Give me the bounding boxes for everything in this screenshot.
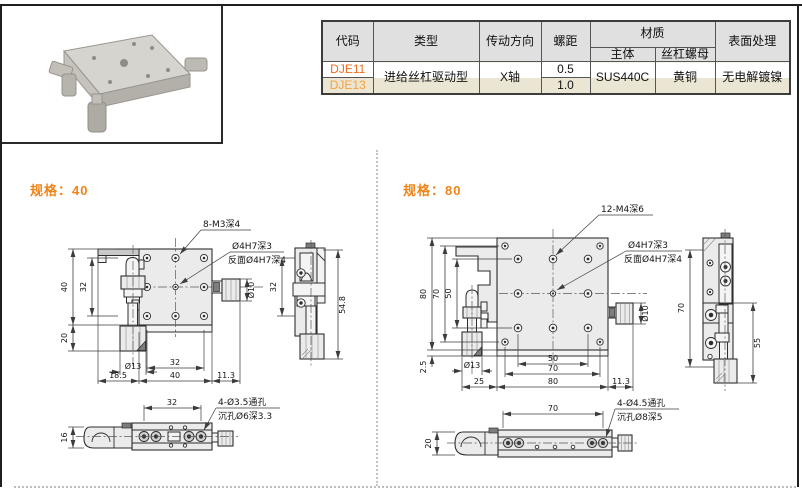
- callout-40-base-holes: 4-Ø3.5通孔: [218, 397, 266, 408]
- cell-type: 进给丝杠驱动型: [373, 62, 479, 94]
- dim-80-side-span: 70: [677, 303, 686, 313]
- header-type: 类型: [373, 21, 479, 62]
- dim-80-base-hole-span: 70: [548, 404, 558, 413]
- dim-40-offset-left: 18.5: [109, 371, 127, 380]
- product-photo: [2, 6, 221, 142]
- cell-pitch-1: 0.5: [541, 62, 590, 78]
- dim-40-side-hole-span: 32: [269, 282, 278, 292]
- dim-80-knob-dia: Ø13: [464, 360, 480, 370]
- header-material-body: 主体: [590, 47, 655, 62]
- callout-80-center-front: Ø4H7深3: [628, 240, 668, 251]
- x-axis-knob: [212, 279, 240, 301]
- dim-80-corner-span-v: 70: [432, 289, 441, 299]
- dim-40-plate-width: 40: [170, 371, 180, 380]
- callout-80-base-counterbore: 沉孔Ø8深5: [617, 412, 663, 423]
- cell-direction: X轴: [479, 62, 541, 94]
- spec80-bottom-view: 70 20 4-Ø4.5通孔 沉孔Ø8深5: [424, 398, 679, 457]
- spec80-front-view: 80 70 50 2.5 Ø13 25 50 70 80 11.3: [419, 204, 682, 391]
- dim-40-base-height: 16: [60, 432, 69, 442]
- code-dje11: DJE11: [322, 62, 373, 78]
- dim-40-knob-drop: 20: [60, 333, 69, 343]
- callout-80-base-holes: 4-Ø4.5通孔: [617, 398, 665, 409]
- callout-40-center-front: Ø4H7深3: [232, 241, 272, 252]
- cell-pitch-2: 1.0: [541, 78, 590, 94]
- dim-80-hole-span-h: 50: [548, 354, 558, 363]
- callout-40-holes: 8-M3深4: [203, 219, 240, 230]
- dim-40-side-total-height: 54.8: [338, 296, 347, 314]
- cell-body: SUS440C: [590, 62, 655, 94]
- cell-surface: 无电解镀镍: [715, 62, 790, 94]
- dim-80-offset-left: 25: [474, 377, 484, 386]
- dim-80-side-height: 55: [753, 338, 762, 348]
- callout-80-holes: 12-M4深6: [601, 204, 644, 215]
- header-direction: 传动方向: [479, 21, 541, 62]
- spec40-drawing: 40 32 20 Ø13 18.5 32 40 11.3 Ø10 8-M3深4: [20, 195, 376, 473]
- dim-40-knob-overhang: 11.3: [217, 371, 235, 380]
- header-code: 代码: [322, 21, 373, 62]
- dim-40-shaft-dia: Ø10: [246, 282, 256, 298]
- x-axis-knob: [608, 303, 633, 324]
- product-photo-box: [2, 6, 223, 144]
- dim-40-hole-span-h: 32: [170, 358, 180, 367]
- callout-40-base-counterbore: 沉孔Ø6深3.3: [218, 411, 272, 422]
- dim-80-hole-span-v: 50: [444, 288, 453, 298]
- spec80-side-view: 70 55: [677, 229, 762, 391]
- header-material-nut: 丝杠螺母: [655, 47, 715, 62]
- spec40-bottom-view: 32 16 4-Ø3.5通孔 沉孔Ø6深3.3: [60, 397, 280, 450]
- dim-80-shaft-dia: Ø10: [640, 305, 650, 321]
- header-pitch: 螺距: [541, 21, 590, 62]
- dim-80-base-height: 20: [424, 438, 433, 448]
- cell-nut: 黄铜: [655, 62, 715, 94]
- header-surface: 表面处理: [715, 21, 790, 62]
- dim-80-plate-width: 80: [548, 377, 558, 386]
- table-row-dje11: DJE11 进给丝杠驱动型 X轴 0.5 SUS440C 黄铜 无电解镀镍: [322, 62, 790, 78]
- dim-80-corner-span-h: 70: [548, 364, 558, 373]
- header-material: 材质: [590, 21, 715, 47]
- spec-table: 代码 类型 传动方向 螺距 材质 表面处理 主体 丝杠螺母 DJE11 进给丝杠…: [321, 20, 791, 95]
- page-border-bottom-dotted: [14, 486, 796, 488]
- spec40-front-view: 40 32 20 Ø13 18.5 32 40 11.3 Ø10 8-M3深4: [60, 219, 286, 384]
- dim-40-base-hole-span: 32: [167, 398, 177, 407]
- spec80-drawing: 80 70 50 2.5 Ø13 25 50 70 80 11.3: [385, 195, 799, 467]
- dim-40-plate-height: 40: [60, 282, 69, 292]
- dim-80-base-gap: 2.5: [419, 361, 428, 374]
- dim-80-plate-height: 80: [419, 289, 428, 299]
- spec-panel-divider: [376, 150, 378, 486]
- callout-80-center-back: 反面Ø4H7深4: [624, 254, 682, 265]
- callout-40-center-back: 反面Ø4H7深4: [228, 255, 286, 266]
- code-dje13: DJE13: [322, 78, 373, 94]
- dim-80-knob-overhang: 11.3: [612, 377, 630, 386]
- dim-40-hole-span-v: 32: [79, 282, 88, 292]
